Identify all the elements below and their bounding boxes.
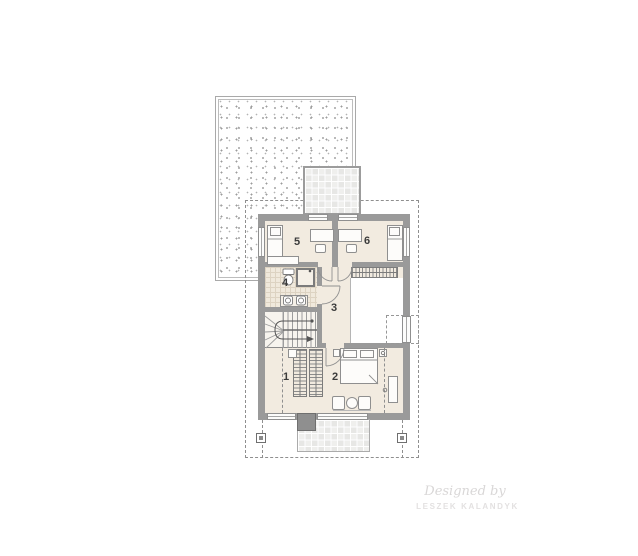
- upper-balcony: [303, 166, 361, 215]
- room2-top-wall-left: [322, 343, 326, 348]
- floor-plan-canvas: 1 2 3 4 5 6 Designed by LESZEK KALANDYK: [0, 0, 638, 556]
- pillow-room5: [270, 227, 281, 236]
- nightstand-left: [333, 349, 340, 357]
- right-wall-opening: [402, 316, 411, 343]
- window-room6-right: [403, 227, 410, 257]
- watermark-designed-by: Designed by: [415, 484, 515, 499]
- pillow-room2-right: [360, 350, 374, 358]
- room-label-1: 1: [283, 372, 289, 383]
- room-label-4: 4: [282, 278, 288, 289]
- shower-symbol: [296, 268, 315, 287]
- balcony-door-room6: [338, 214, 358, 221]
- attic-slope-dashed-right: [384, 348, 385, 413]
- stair-treads-upper: [283, 312, 317, 330]
- room-label-2: 2: [332, 372, 338, 383]
- desk-room5: [310, 229, 334, 242]
- dresser-room5: [267, 256, 299, 265]
- armchair-right: [358, 396, 371, 410]
- chimney-block: [297, 413, 316, 431]
- room-label-3: 3: [331, 303, 337, 314]
- sink-counter: [280, 295, 308, 307]
- bathroom-right-wall-lower: [317, 304, 322, 348]
- armchair-left: [332, 396, 345, 410]
- pillow-room6: [389, 227, 400, 236]
- stool-room1: [288, 349, 297, 358]
- nightstand-right: [379, 349, 387, 357]
- balcony-door-room5: [308, 214, 328, 221]
- column-right-core: [400, 436, 404, 440]
- stair-treads-lower: [283, 330, 317, 348]
- desk-room6: [338, 229, 362, 242]
- window-sill-line: [333, 410, 371, 411]
- wardrobe-railing-band: [351, 267, 398, 278]
- column-left: [256, 433, 266, 443]
- chair-room6: [346, 244, 357, 253]
- bathroom-right-wall-upper: [317, 267, 322, 286]
- window-room5-left: [258, 227, 265, 257]
- watermark-brand: LESZEK KALANDYK: [405, 502, 530, 511]
- round-table: [346, 397, 358, 409]
- dresser-room2: [388, 376, 398, 403]
- column-left-core: [259, 436, 263, 440]
- room-label-5: 5: [294, 237, 300, 248]
- wardrobe-column-right: [309, 349, 323, 397]
- balcony-door-room2: [317, 413, 368, 420]
- chair-room5: [315, 244, 326, 253]
- room-label-6: 6: [364, 236, 370, 247]
- column-right: [397, 433, 407, 443]
- wall-between-room5-room6: [332, 221, 338, 267]
- window-room1-bottom: [267, 413, 296, 420]
- pillow-room2-left: [343, 350, 357, 358]
